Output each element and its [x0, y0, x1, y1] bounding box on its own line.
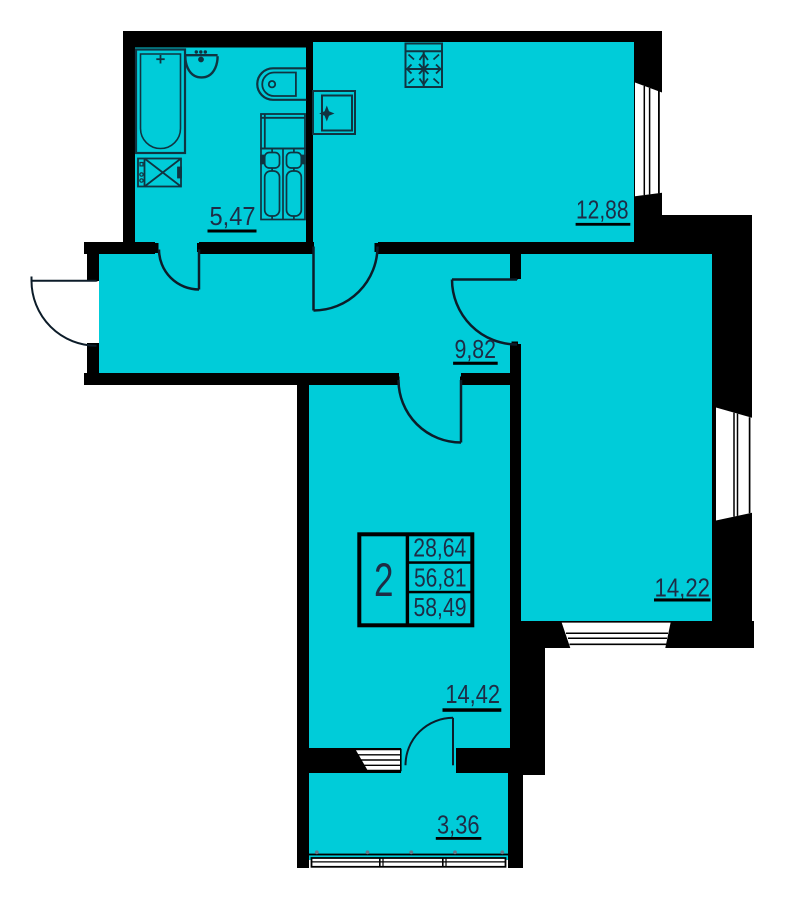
svg-text:58,49: 58,49: [414, 594, 467, 622]
svg-text:3,36: 3,36: [437, 812, 480, 840]
svg-text:56,81: 56,81: [414, 564, 467, 592]
svg-text:5,47: 5,47: [210, 203, 256, 231]
svg-text:14,22: 14,22: [655, 575, 711, 603]
svg-text:9,82: 9,82: [455, 336, 497, 364]
svg-text:12,88: 12,88: [576, 197, 629, 225]
svg-text:28,64: 28,64: [413, 535, 466, 563]
svg-text:14,42: 14,42: [445, 681, 500, 709]
svg-text:2: 2: [374, 554, 394, 607]
